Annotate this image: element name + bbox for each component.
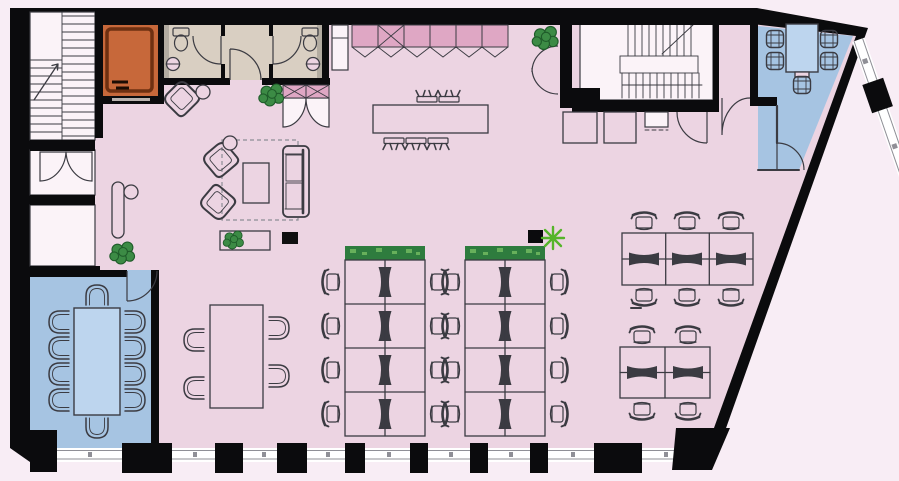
plant-icon [532,27,558,50]
meeting-room-bottom-left [30,270,152,448]
elevator-lobby [30,205,95,266]
stairwell-top-left [30,12,95,140]
wc-block [164,25,322,80]
floor-plan-page [0,0,899,481]
elevator-room [100,22,158,100]
bench-stool [124,185,138,199]
plant-icon [223,231,243,249]
coffee-table [243,163,269,203]
wardrobe [283,85,329,98]
plant-icon [259,84,284,106]
island-table [373,105,488,133]
tv-screen [282,232,298,244]
storage-box [563,112,597,143]
elevator-door-gap [112,98,150,101]
storage-box [604,112,636,143]
desk-planter [345,246,425,260]
conference-table [74,308,120,415]
floor-plan [0,0,899,481]
desk-planter [465,246,545,260]
plant-icon [110,242,135,264]
column [528,230,543,243]
star-plant-icon [542,227,564,249]
tall-cabinet [332,25,348,70]
entrance-side-table [196,85,210,99]
wall-bench [112,182,124,238]
sofa [283,146,309,217]
side-table [223,136,237,150]
meeting-table-top-right [786,24,818,72]
small-table [210,305,263,408]
storage-box [645,112,668,127]
